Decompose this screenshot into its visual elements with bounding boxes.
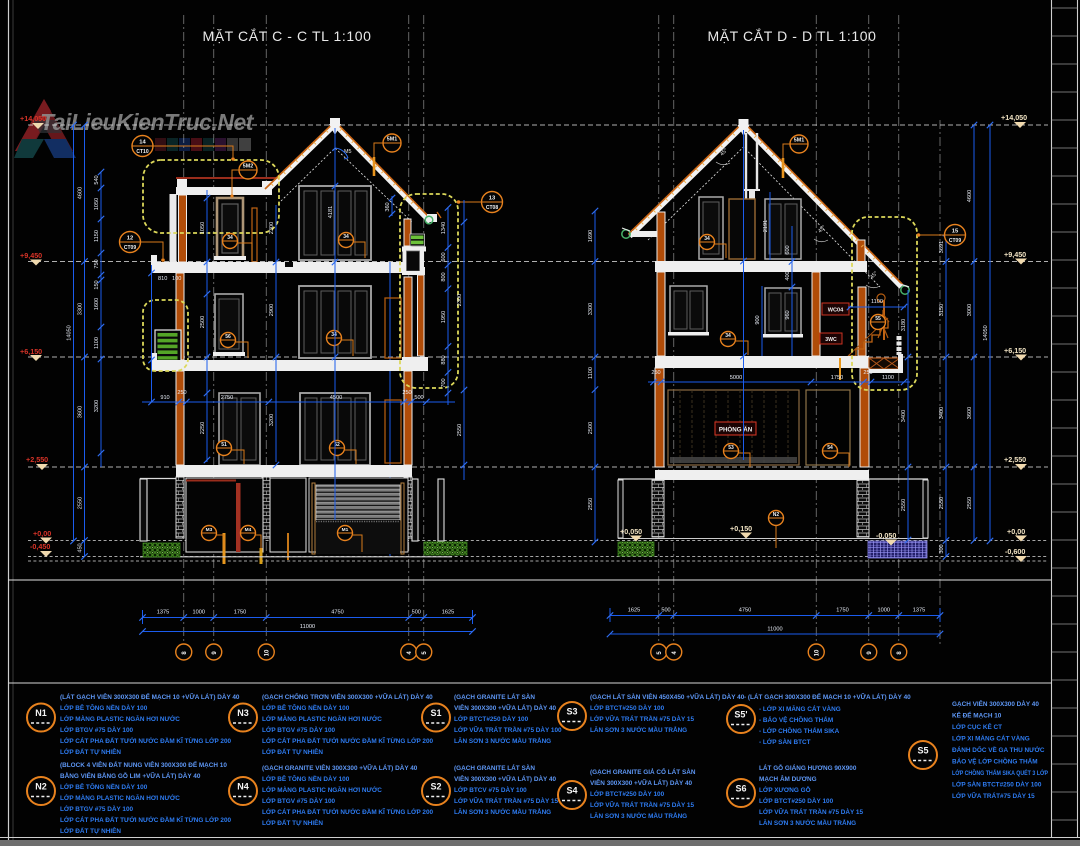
svg-text:3600: 3600 [78, 406, 84, 418]
svg-text:250: 250 [863, 370, 872, 376]
svg-text:+2,550: +2,550 [26, 455, 48, 464]
svg-text:+6,150: +6,150 [20, 347, 42, 356]
svg-text:3180: 3180 [901, 319, 907, 331]
svg-text:750: 750 [94, 259, 100, 268]
svg-text:1750: 1750 [831, 375, 843, 381]
svg-text:900: 900 [755, 315, 761, 324]
svg-text:M4: M4 [245, 527, 252, 533]
svg-text:100: 100 [172, 276, 181, 282]
svg-text:360: 360 [385, 202, 391, 211]
svg-text:14: 14 [139, 140, 146, 146]
svg-text:M5: M5 [344, 149, 352, 155]
svg-text:2750: 2750 [221, 395, 233, 401]
svg-text:1950: 1950 [441, 311, 447, 323]
svg-text:LỚP MÀNG PLASTIC NGĂN HƠI NƯỚC: LỚP MÀNG PLASTIC NGĂN HƠI NƯỚC [60, 714, 180, 723]
svg-text:51: 51 [221, 442, 227, 448]
svg-text:2250: 2250 [200, 422, 206, 434]
svg-text:M1: M1 [342, 527, 349, 533]
svg-text:34: 34 [343, 234, 349, 240]
svg-text:VIÊN 300X300 +VỮA LÁT) DÀY 40: VIÊN 300X300 +VỮA LÁT) DÀY 40 [590, 778, 693, 787]
svg-text:1100: 1100 [94, 337, 100, 349]
svg-text:4750: 4750 [331, 610, 343, 616]
svg-text:+0,050: +0,050 [620, 527, 642, 536]
svg-text:MẶT CẮT D - D TL 1:100: MẶT CẮT D - D TL 1:100 [707, 27, 876, 44]
svg-text:2900: 2900 [269, 304, 275, 316]
svg-text:34: 34 [227, 235, 233, 241]
svg-text:800: 800 [441, 272, 447, 281]
svg-text:VIÊN 300X300 +VỮA LÁT) DÀY 40: VIÊN 300X300 +VỮA LÁT) DÀY 40 [454, 703, 557, 712]
svg-text:(GẠCH GRANITE LÁT SÀN: (GẠCH GRANITE LÁT SÀN [454, 763, 535, 772]
svg-text:2500: 2500 [588, 422, 594, 434]
svg-text:150: 150 [94, 280, 100, 289]
svg-text:450: 450 [78, 543, 84, 552]
svg-text:5000: 5000 [730, 375, 742, 381]
svg-text:600: 600 [785, 245, 791, 254]
svg-text:M3: M3 [206, 527, 213, 533]
svg-text:LỚP VỮA TRÁT#75 DÀY 15: LỚP VỮA TRÁT#75 DÀY 15 [952, 791, 1035, 800]
svg-text:MẠCH ÂM DƯƠNG: MẠCH ÂM DƯƠNG [759, 774, 817, 783]
svg-text:GẠCH VIÊN 300X300 DÀY 40: GẠCH VIÊN 300X300 DÀY 40 [952, 699, 1039, 708]
svg-text:+9,450: +9,450 [1004, 250, 1026, 259]
svg-text:1625: 1625 [442, 610, 454, 616]
svg-text:880: 880 [441, 355, 447, 364]
svg-text:1100: 1100 [882, 375, 894, 381]
svg-text:+14,050: +14,050 [1001, 113, 1027, 122]
svg-text:2550: 2550 [901, 499, 907, 511]
svg-text:3691: 3691 [939, 241, 945, 253]
svg-text:1050: 1050 [200, 222, 206, 234]
svg-text:1375: 1375 [157, 610, 169, 616]
svg-text:3200: 3200 [94, 400, 100, 412]
svg-text:4750: 4750 [739, 608, 751, 614]
svg-text:500: 500 [661, 608, 670, 614]
svg-text:N2: N2 [773, 512, 780, 518]
svg-text:WC04: WC04 [828, 308, 844, 314]
svg-text:3150: 3150 [939, 304, 945, 316]
svg-text:56: 56 [225, 334, 231, 340]
svg-text:10: 10 [264, 649, 270, 656]
svg-text:LỚP XI MĂNG CÁT VÀNG: LỚP XI MĂNG CÁT VÀNG [952, 734, 1030, 743]
svg-text:1100: 1100 [588, 367, 594, 379]
svg-text:3300: 3300 [78, 303, 84, 315]
svg-text:1375: 1375 [913, 608, 925, 614]
svg-text:12: 12 [127, 236, 133, 242]
svg-text:KÊ ĐỂ MẠCH 10: KÊ ĐỂ MẠCH 10 [952, 711, 1002, 720]
svg-text:S3: S3 [566, 707, 577, 717]
svg-text:400: 400 [785, 271, 791, 280]
svg-text:1750: 1750 [234, 610, 246, 616]
svg-text:1050: 1050 [94, 198, 100, 210]
svg-text:960: 960 [785, 310, 791, 319]
svg-text:+0,150: +0,150 [730, 524, 752, 533]
svg-text:-0,450: -0,450 [30, 542, 50, 551]
svg-text:5M1: 5M1 [387, 137, 398, 143]
svg-text:300: 300 [939, 544, 945, 553]
svg-text:3200: 3200 [269, 414, 275, 426]
svg-text:1750: 1750 [836, 608, 848, 614]
svg-text:-0,050: -0,050 [876, 531, 896, 540]
svg-text:1100: 1100 [871, 299, 883, 305]
svg-text:2550: 2550 [78, 497, 84, 509]
svg-text:- LỚP SÀN BTCT: - LỚP SÀN BTCT [759, 737, 811, 746]
svg-text:3300: 3300 [588, 303, 594, 315]
svg-text:LỚP MÀNG PLASTIC NGĂN HƠI NƯỚC: LỚP MÀNG PLASTIC NGĂN HƠI NƯỚC [60, 793, 180, 802]
svg-text:S5': S5' [734, 710, 747, 720]
svg-text:TaiLieuKienTruc.Net: TaiLieuKienTruc.Net [40, 109, 255, 135]
svg-text:LỚP MÀNG PLASTIC NGĂN HƠI NƯỚC: LỚP MÀNG PLASTIC NGĂN HƠI NƯỚC [262, 785, 382, 794]
svg-text:LỚP BTCT#250 DÀY 100: LỚP BTCT#250 DÀY 100 [590, 703, 665, 712]
svg-text:(LÁT GẠCH VIÊN 300X300 ĐỂ MẠCH: (LÁT GẠCH VIÊN 300X300 ĐỂ MẠCH 10 +VỮA L… [60, 692, 240, 701]
svg-text:4181: 4181 [328, 206, 334, 218]
svg-text:CT10: CT10 [136, 149, 148, 155]
svg-text:500: 500 [412, 610, 421, 616]
svg-text:4500: 4500 [330, 395, 342, 401]
svg-text:LỚP CỤC KÊ CT: LỚP CỤC KÊ CT [952, 722, 1002, 731]
svg-text:1600: 1600 [94, 298, 100, 310]
svg-text:LỚP SÀN BTCT#250 DÀY 100: LỚP SÀN BTCT#250 DÀY 100 [952, 780, 1042, 789]
svg-text:34: 34 [331, 332, 337, 338]
svg-text:+14,050: +14,050 [20, 114, 46, 123]
svg-text:LỚP BTGV #75 DÀY 100: LỚP BTGV #75 DÀY 100 [262, 796, 336, 805]
svg-text:- (LÁT GẠCH 300X300 ĐỂ MẠCH 10: - (LÁT GẠCH 300X300 ĐỂ MẠCH 10 +VỮA LÁT)… [744, 692, 911, 701]
svg-text:3600: 3600 [967, 407, 973, 419]
svg-text:(GẠCH GRANITE VIÊN 300X300 +VỮ: (GẠCH GRANITE VIÊN 300X300 +VỮA LÁT) DÀY… [262, 763, 418, 772]
svg-text:1340: 1340 [441, 222, 447, 234]
svg-text:11000: 11000 [300, 624, 315, 630]
svg-text:5M1: 5M1 [794, 138, 805, 144]
svg-text:11000: 11000 [767, 627, 782, 633]
svg-text:LỚP BTGV #75 DÀY 100: LỚP BTGV #75 DÀY 100 [60, 804, 134, 813]
svg-text:15: 15 [952, 229, 959, 235]
svg-text:3000: 3000 [967, 304, 973, 316]
svg-text:N2: N2 [35, 782, 47, 792]
svg-text:34: 34 [725, 333, 731, 339]
svg-text:500: 500 [414, 395, 423, 401]
svg-text:34: 34 [704, 236, 710, 242]
svg-text:CT08: CT08 [486, 205, 498, 211]
svg-text:250: 250 [402, 390, 411, 396]
svg-text:2550: 2550 [457, 424, 463, 436]
svg-text:2191: 2191 [763, 220, 769, 232]
svg-text:4600: 4600 [78, 187, 84, 199]
svg-text:PHÒNG ĂN: PHÒNG ĂN [719, 426, 753, 434]
svg-text:- LỚP XI MĂNG CÁT VÀNG: - LỚP XI MĂNG CÁT VÀNG [759, 704, 841, 713]
svg-text:53: 53 [728, 445, 734, 451]
svg-text:+2,550: +2,550 [1004, 455, 1026, 464]
svg-text:N1: N1 [35, 708, 47, 718]
svg-text:2300: 2300 [269, 222, 275, 234]
svg-text:14050: 14050 [67, 325, 73, 341]
svg-text:S5: S5 [917, 746, 928, 756]
svg-text:LỚP MÀNG PLASTIC NGĂN HƠI NƯỚC: LỚP MÀNG PLASTIC NGĂN HƠI NƯỚC [262, 714, 382, 723]
svg-text:LỚP BTCT#250 DÀY 100: LỚP BTCT#250 DÀY 100 [759, 796, 834, 805]
svg-text:14050: 14050 [983, 325, 989, 341]
svg-text:BẰNG VIÊN BẰNG GỖ LIM +VỮA LÁT: BẰNG VIÊN BẰNG GỖ LIM +VỮA LÁT) DÀY 40 [60, 771, 201, 780]
svg-text:LÁT GỖ GIÁNG HƯƠNG 90X900: LÁT GỖ GIÁNG HƯƠNG 90X900 [759, 763, 857, 772]
svg-text:540: 540 [94, 175, 100, 184]
svg-text:N3: N3 [237, 708, 249, 718]
svg-text:(GẠCH GRANITE LÁT SÀN: (GẠCH GRANITE LÁT SÀN [454, 692, 535, 701]
svg-text:(GẠCH LÁT SÀN VIÊN 450X450 +VỮ: (GẠCH LÁT SÀN VIÊN 450X450 +VỮA LÁT) DÀY… [590, 692, 745, 701]
svg-text:5M2: 5M2 [243, 164, 254, 170]
svg-text:2550: 2550 [967, 497, 973, 509]
svg-text:10: 10 [814, 649, 820, 656]
svg-text:S4: S4 [566, 786, 577, 796]
svg-text:250: 250 [651, 370, 660, 376]
svg-text:2550: 2550 [939, 497, 945, 509]
svg-text:LỚP BTCT#250 DÀY 100: LỚP BTCT#250 DÀY 100 [454, 714, 529, 723]
svg-text:+9,450: +9,450 [20, 251, 42, 260]
svg-text:MẶT CẮT C - C TL 1:100: MẶT CẮT C - C TL 1:100 [202, 27, 371, 44]
svg-text:+0,00: +0,00 [33, 529, 51, 538]
svg-text:3400: 3400 [901, 410, 907, 422]
svg-text:700: 700 [441, 378, 447, 387]
svg-text:(GẠCH GRANITE GIẢ CỔ LÁT SÀN: (GẠCH GRANITE GIẢ CỔ LÁT SÀN [590, 767, 696, 776]
svg-text:13: 13 [489, 196, 496, 202]
svg-text:VIÊN 300X300 +VỮA LÁT) DÀY 40: VIÊN 300X300 +VỮA LÁT) DÀY 40 [454, 774, 557, 783]
svg-text:N4: N4 [237, 782, 249, 792]
svg-text:S1: S1 [430, 708, 441, 718]
svg-text:1000: 1000 [878, 608, 890, 614]
svg-text:2500: 2500 [200, 316, 206, 328]
svg-text:-0,600: -0,600 [1005, 547, 1025, 556]
svg-text:+6,150: +6,150 [1004, 346, 1026, 355]
svg-text:1625: 1625 [628, 608, 640, 614]
svg-text:3400: 3400 [939, 407, 945, 419]
svg-text:LỚP XƯƠNG GỖ: LỚP XƯƠNG GỖ [759, 785, 811, 794]
svg-text:CT09: CT09 [124, 245, 136, 251]
svg-text:+0,00: +0,00 [1007, 527, 1025, 536]
svg-text:810: 810 [158, 276, 167, 282]
svg-text:LỚP BTCT#250 DÀY 100: LỚP BTCT#250 DÀY 100 [590, 789, 665, 798]
svg-text:3WC: 3WC [825, 337, 837, 343]
svg-text:54: 54 [827, 445, 833, 451]
svg-text:4600: 4600 [967, 190, 973, 202]
svg-text:S6: S6 [735, 784, 746, 794]
svg-text:LỚP BTGV #75 DÀY 100: LỚP BTGV #75 DÀY 100 [262, 725, 336, 734]
svg-text:CT09: CT09 [949, 238, 961, 244]
svg-text:1150: 1150 [94, 230, 100, 242]
svg-text:250: 250 [177, 390, 186, 396]
svg-text:2550: 2550 [588, 498, 594, 510]
svg-text:910: 910 [160, 395, 169, 401]
svg-text:1000: 1000 [193, 610, 205, 616]
svg-text:S2: S2 [430, 782, 441, 792]
svg-text:2300: 2300 [457, 294, 463, 306]
svg-text:LỚP BTCV #75 DÀY 100: LỚP BTCV #75 DÀY 100 [454, 785, 527, 794]
svg-text:55: 55 [875, 316, 881, 322]
svg-text:1690: 1690 [588, 230, 594, 242]
svg-text:LỚP BTGV #75 DÀY 100: LỚP BTGV #75 DÀY 100 [60, 725, 134, 734]
svg-text:600: 600 [441, 252, 447, 261]
